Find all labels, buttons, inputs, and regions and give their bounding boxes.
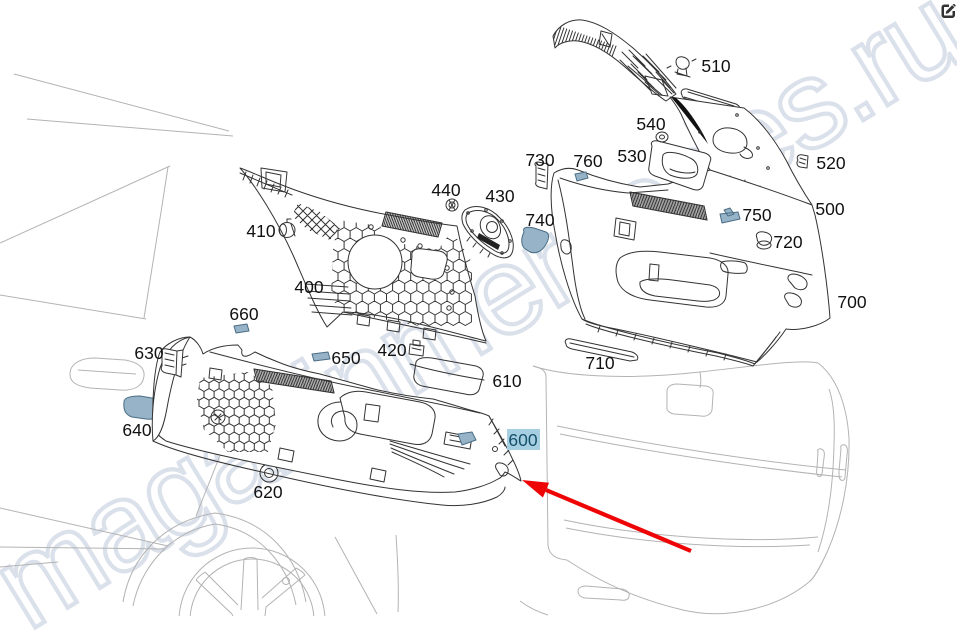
svg-text:750: 750 [742,205,771,225]
svg-text:720: 720 [773,232,802,252]
svg-text:760: 760 [573,151,602,171]
svg-text:630: 630 [134,343,163,363]
svg-text:440: 440 [431,180,460,200]
svg-text:620: 620 [253,482,282,502]
svg-text:400: 400 [294,277,323,297]
svg-text:700: 700 [837,292,866,312]
svg-text:540: 540 [636,114,665,134]
svg-text:510: 510 [701,56,730,76]
svg-text:660: 660 [229,304,258,324]
svg-text:740: 740 [525,210,554,230]
svg-text:610: 610 [492,371,521,391]
svg-text:530: 530 [617,146,646,166]
svg-text:650: 650 [331,348,360,368]
svg-text:520: 520 [816,153,845,173]
svg-text:420: 420 [377,340,406,360]
svg-text:410: 410 [246,221,275,241]
svg-text:710: 710 [585,353,614,373]
svg-text:500: 500 [815,199,844,219]
svg-text:600: 600 [508,430,537,450]
svg-text:730: 730 [525,150,554,170]
svg-text:640: 640 [122,420,151,440]
svg-text:430: 430 [485,186,514,206]
